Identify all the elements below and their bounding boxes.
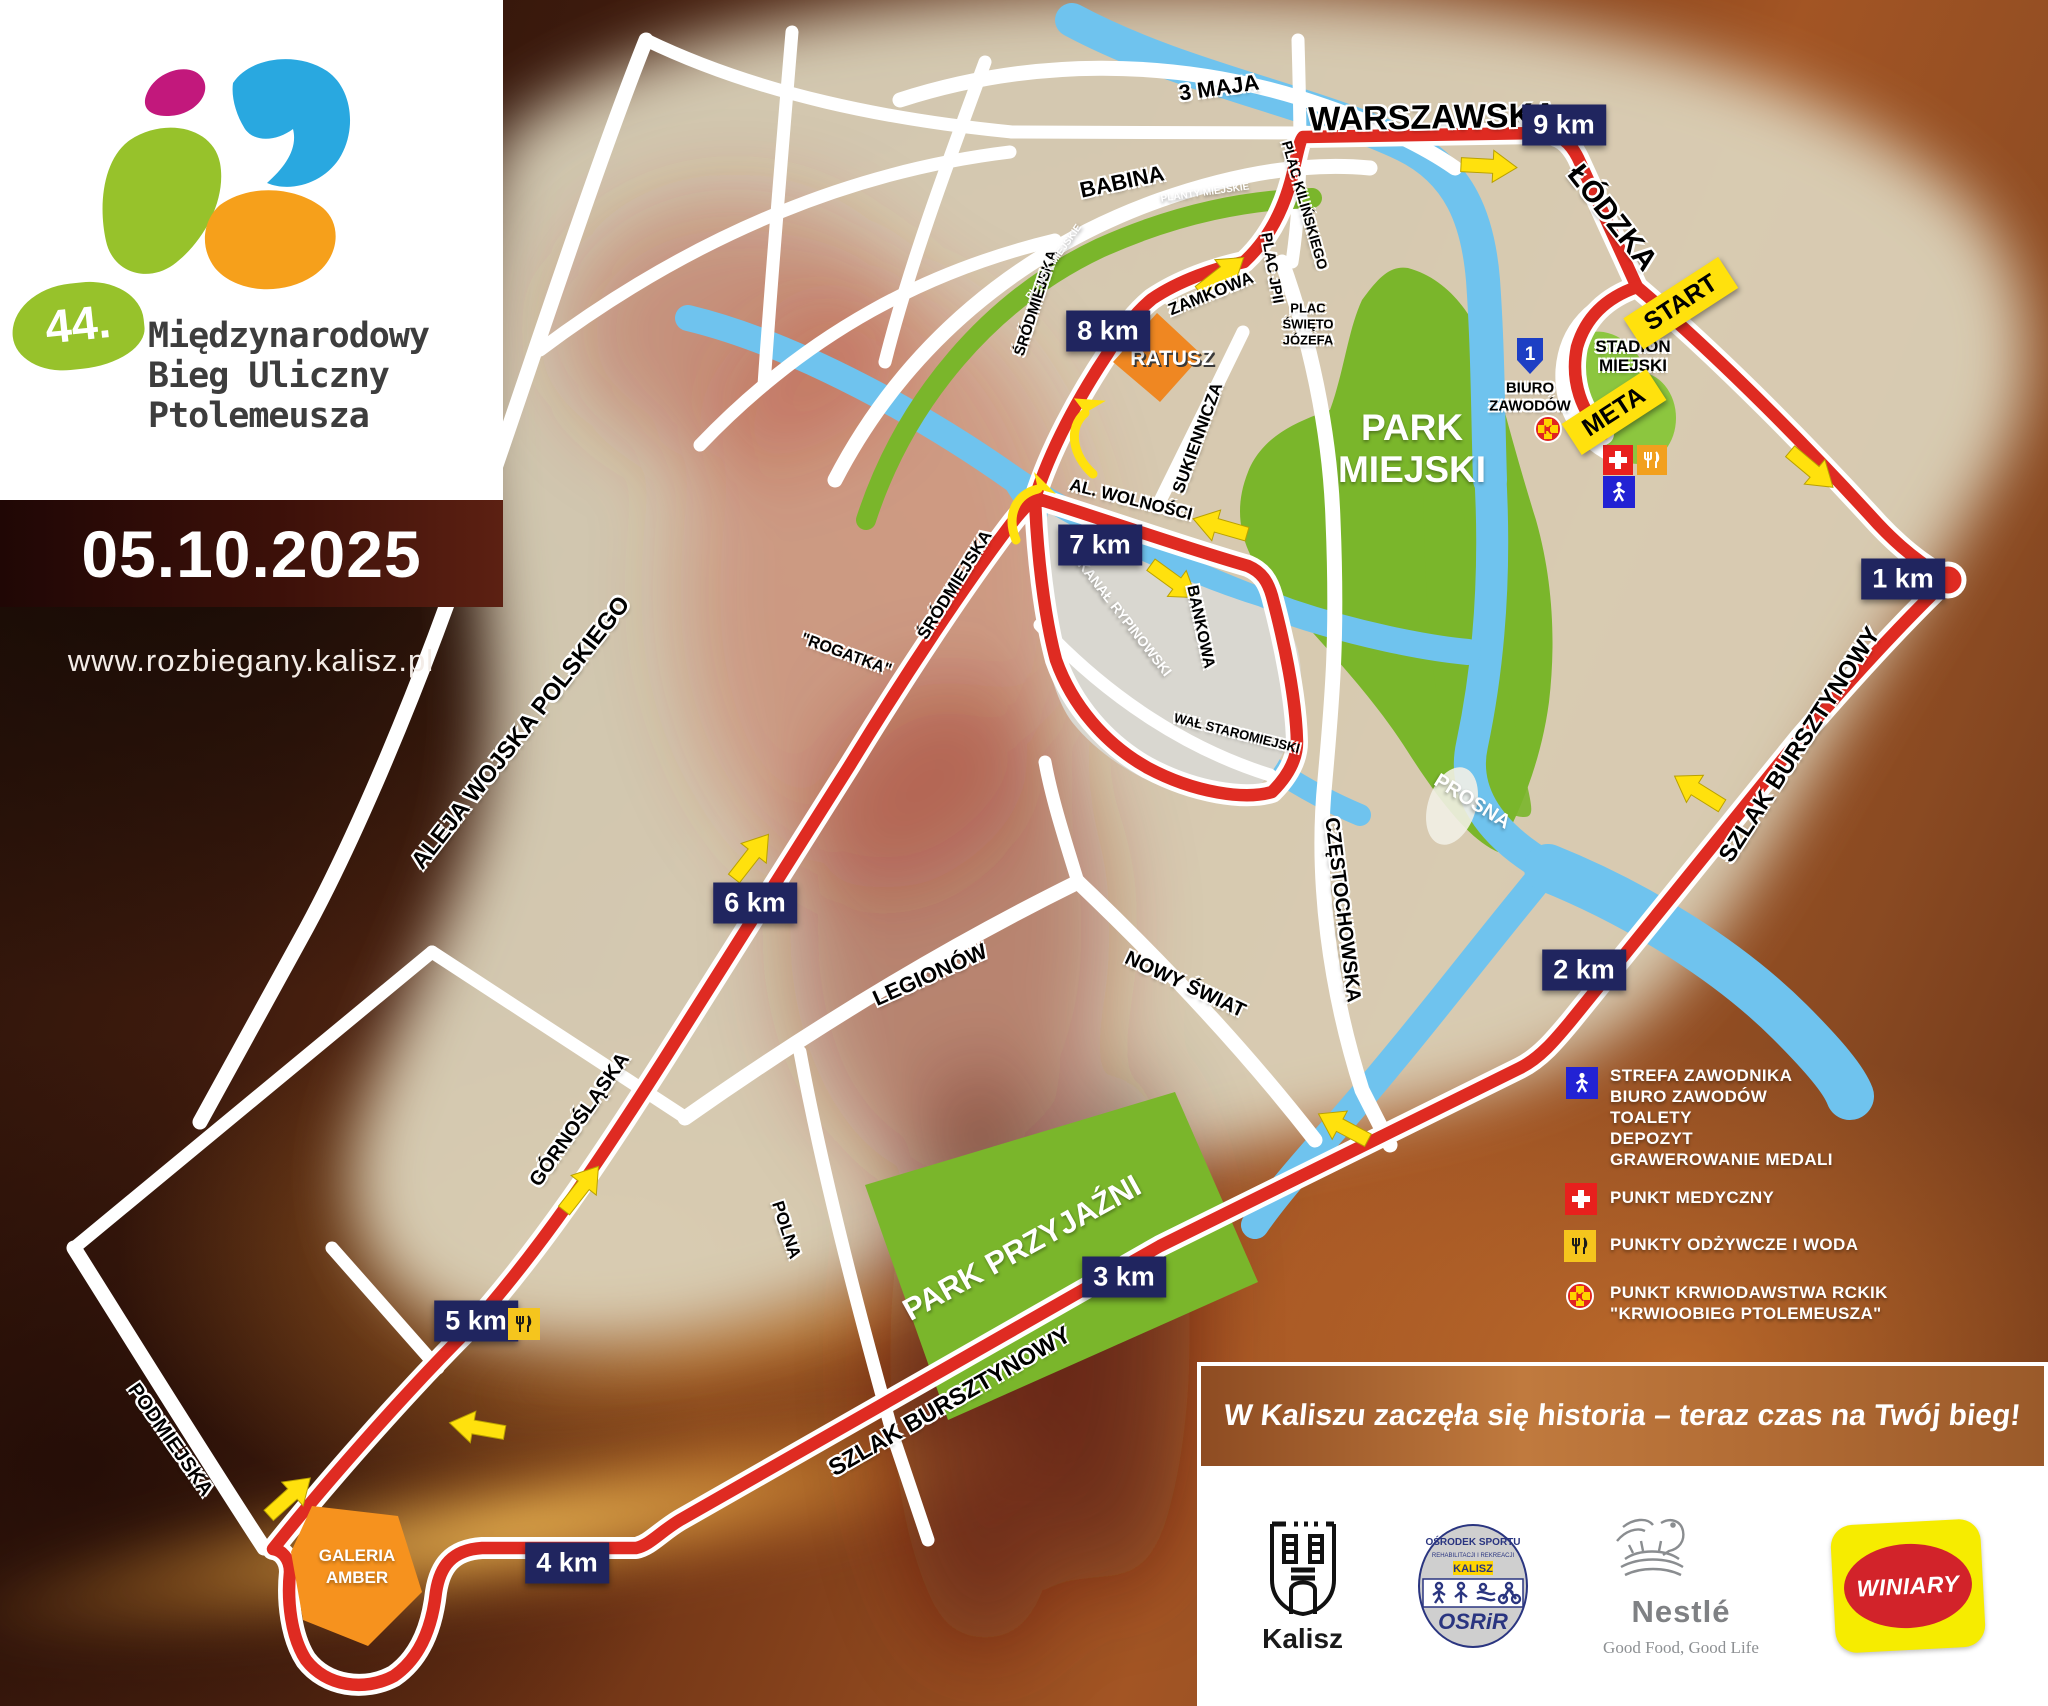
winiary-wordmark: WINIARY [1856,1570,1960,1602]
svg-text:K: K [1576,1290,1585,1304]
stadion-label-1: STADION [1595,337,1670,357]
km-badge-8: 8 km [1066,311,1150,352]
km-badge-2: 2 km [1542,950,1626,991]
street-warszawska: WARSZAWSKA [1308,96,1558,139]
runner-zone-icon-stadium [1603,476,1635,508]
event-title-line1: Międzynarodowy [148,316,429,356]
street-plac-jozefa-1: PLAC [1290,301,1325,316]
legend-strefa-4: DEPOZYT [1610,1129,1693,1149]
nestle-tagline: Good Food, Good Life [1603,1638,1759,1658]
sponsor-winiary: WINIARY [1830,1518,1986,1654]
km-badge-3: 3 km [1082,1257,1166,1298]
km-badge-9: 9 km [1522,105,1606,146]
legend-strefa-3: TOALETY [1610,1108,1692,1128]
event-logo [85,45,365,295]
km-badge-5: 5 km [434,1301,518,1342]
food-icon-5km [508,1308,540,1340]
blood-icon-legend: K [1565,1281,1595,1311]
km-badge-4: 4 km [525,1543,609,1584]
medical-icon-legend [1565,1183,1597,1215]
svg-text:OŚRODEK SPORTU: OŚRODEK SPORTU [1426,1535,1521,1548]
legend-strefa-1: STREFA ZAWODNIKA [1610,1066,1792,1086]
nestle-wordmark: Nestlé [1603,1594,1759,1630]
edition-number: 44. [42,293,113,355]
sponsors-panel: Kalisz OŚRODEK SPORTU REHABILITACJI I RE… [1197,1466,2048,1706]
date-banner: 05.10.2025 [0,500,503,607]
street-plac-jozefa-3: JÓZEFA [1283,333,1334,348]
biuro-zawodow-label-1: BIURO [1506,380,1554,397]
svg-text:OSRiR: OSRiR [1438,1609,1508,1634]
sponsor-osrir: OŚRODEK SPORTU REHABILITACJI I REKREACJI… [1417,1523,1529,1649]
medical-icon [1603,445,1633,475]
legend-blood-1: PUNKT KRWIODAWSTWA RCKIK [1610,1283,1888,1303]
food-icon-legend [1564,1230,1596,1262]
legend-strefa-2: BIURO ZAWODÓW [1610,1087,1767,1107]
kalisz-wordmark: Kalisz [1262,1623,1343,1655]
food-icon-stadium [1637,445,1667,475]
event-date: 05.10.2025 [81,516,421,592]
legend-food: PUNKTY ODŻYWCZE I WODA [1610,1235,1858,1255]
park-miejski-label-1: PARK [1361,407,1463,449]
legend-medical: PUNKT MEDYCZNY [1610,1188,1774,1208]
sponsor-nestle: Nestlé Good Food, Good Life [1603,1515,1759,1658]
galeria-amber-label-1: GALERIA [319,1546,396,1566]
km-badge-7: 7 km [1058,525,1142,566]
stadion-label-2: MIEJSKI [1599,356,1667,376]
slogan-text: W Kaliszu zaczęła się historia – teraz c… [1223,1399,2023,1433]
slogan-banner: W Kaliszu zaczęła się historia – teraz c… [1197,1362,2048,1470]
biuro-zawodow-label-2: ZAWODÓW [1489,398,1571,415]
event-title-line2: Bieg Uliczny [148,356,389,396]
event-website: www.rozbiegany.kalisz.pl [36,643,466,679]
biuro-marker-icon: 1 [1513,336,1547,376]
header-panel: 44. Międzynarodowy Bieg Uliczny Ptolemeu… [0,0,503,500]
svg-text:REHABILITACJI I REKREACJI: REHABILITACJI I REKREACJI [1432,1553,1515,1559]
event-title-line3: Ptolemeusza [148,396,369,436]
km-badge-6: 6 km [713,883,797,924]
street-plac-jozefa-2: ŚWIĘTO [1282,317,1333,332]
svg-text:1: 1 [1525,344,1536,365]
runner-zone-icon-legend [1566,1067,1598,1099]
svg-text:K: K [1544,423,1553,437]
poster: WARSZAWSKA ŁÓDZKA 3 MAJA BABINA ZAMKOWA … [0,0,2048,1706]
sponsor-kalisz: Kalisz [1262,1518,1343,1655]
legend-blood-2: "KRWIOOBIEG PTOLEMEUSZA" [1610,1304,1882,1324]
nestle-nest-icon [1603,1515,1699,1589]
blood-point-icon: K [1533,414,1563,444]
galeria-amber-label-2: AMBER [326,1568,388,1588]
legend-strefa-5: GRAWEROWANIE MEDALI [1610,1150,1833,1170]
km-badge-1: 1 km [1861,559,1945,600]
park-miejski-label-2: MIEJSKI [1338,449,1486,491]
kalisz-crest-icon [1264,1518,1342,1618]
svg-text:KALISZ: KALISZ [1453,1563,1493,1575]
